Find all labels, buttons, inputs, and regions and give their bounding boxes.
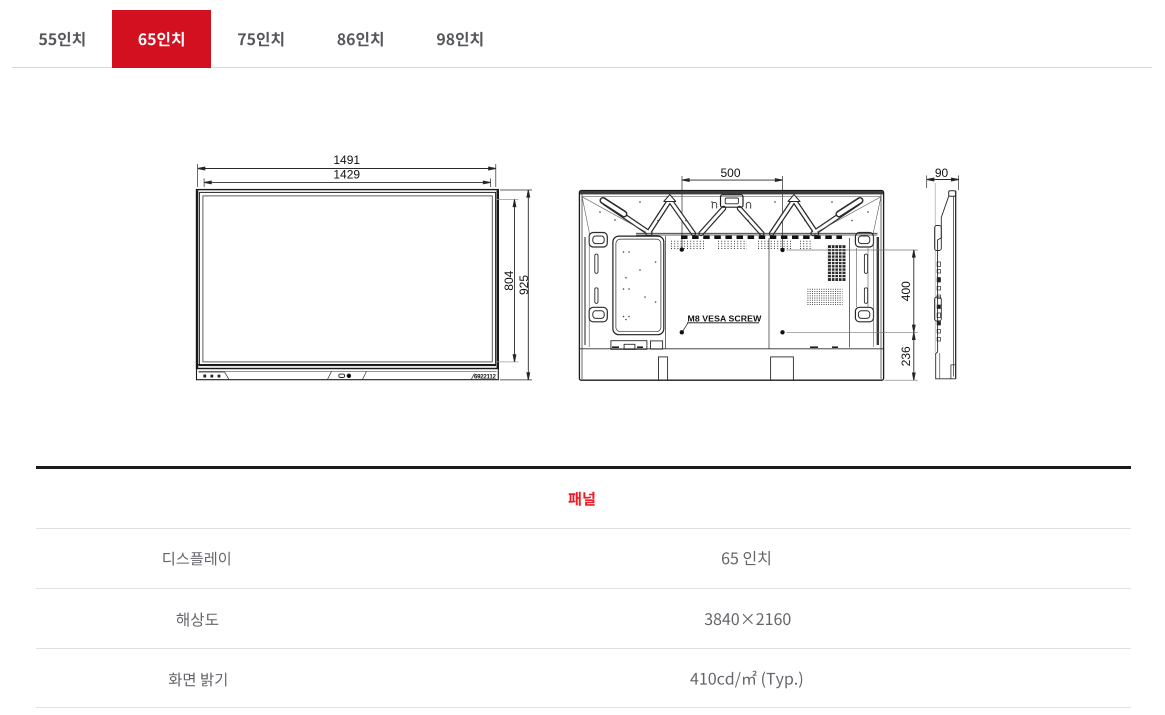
svg-text:90: 90 <box>935 166 949 180</box>
svg-text:M8 VESA SCREW: M8 VESA SCREW <box>688 313 763 323</box>
svg-text:236: 236 <box>899 346 913 366</box>
svg-text:6922112: 6922112 <box>474 374 496 381</box>
svg-text:804: 804 <box>502 270 516 290</box>
svg-text:925: 925 <box>517 275 531 295</box>
svg-text:400: 400 <box>899 281 913 301</box>
svg-text:1429: 1429 <box>333 168 360 182</box>
svg-text:500: 500 <box>720 166 740 180</box>
svg-text:1491: 1491 <box>333 153 360 167</box>
